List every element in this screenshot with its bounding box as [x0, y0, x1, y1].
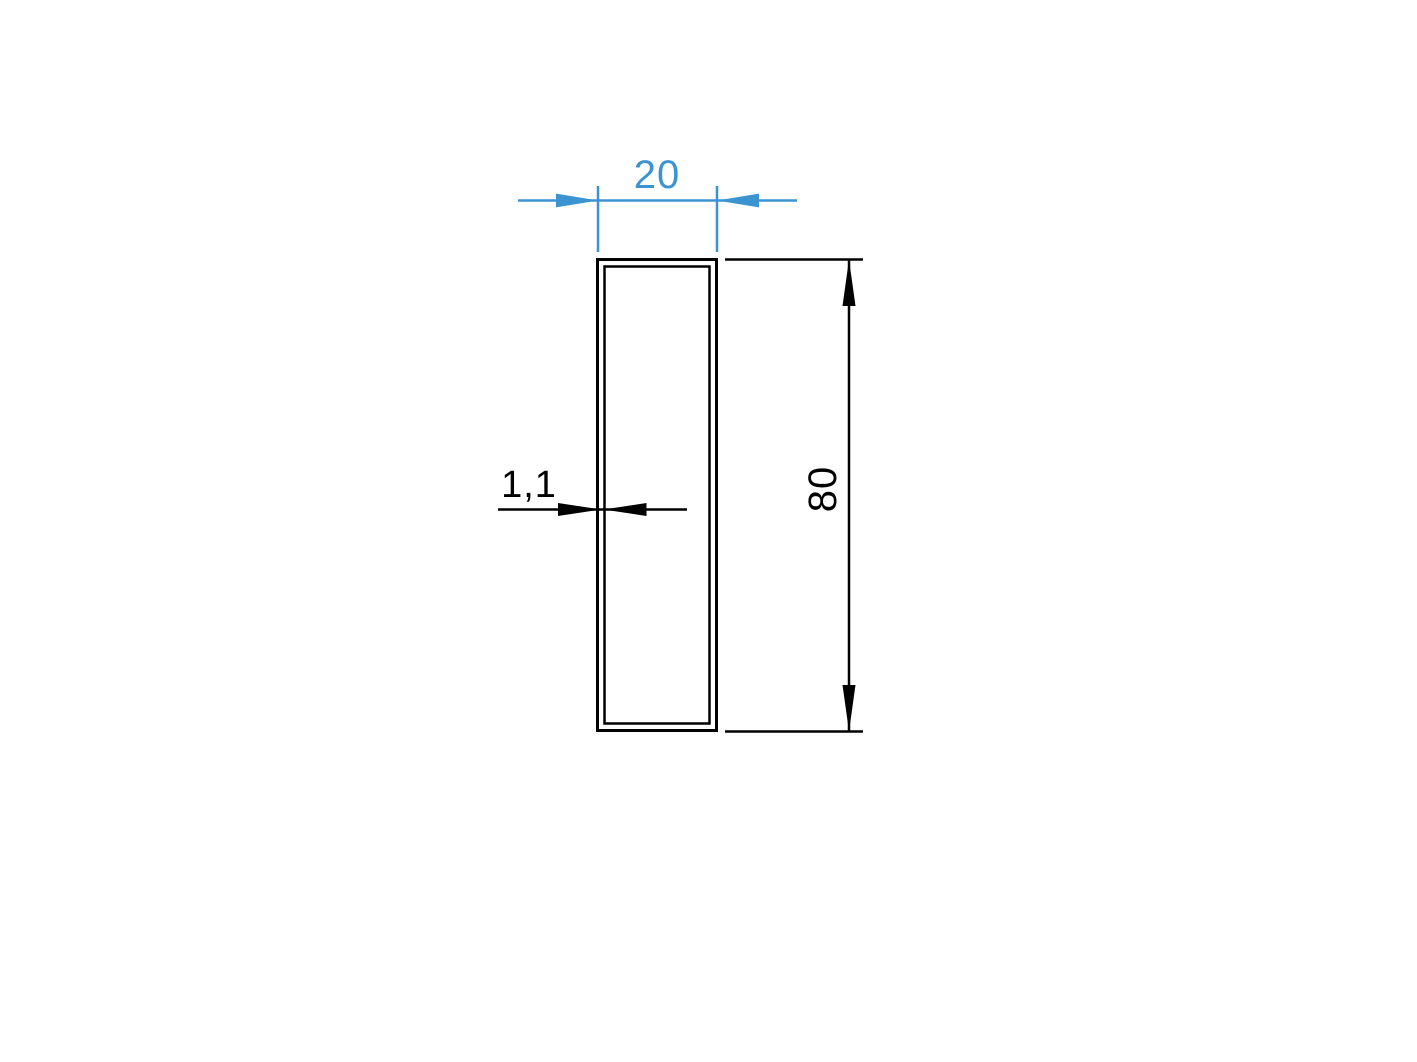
- wall-thickness-label: 1,1: [501, 464, 557, 506]
- wall-arrow-right-icon: [558, 503, 601, 516]
- height-dimension: 80: [725, 260, 863, 732]
- wall-arrow-left-icon: [604, 503, 647, 516]
- width-arrow-left-icon: [556, 194, 598, 208]
- profile-inner-contour: [605, 267, 710, 724]
- width-dimension: 20: [518, 153, 797, 252]
- drawing-page: 20 80 1,1: [0, 0, 1417, 1062]
- height-arrow-up-icon: [843, 260, 856, 307]
- profile-technical-drawing: 20 80 1,1: [0, 0, 1417, 1062]
- tube-profile-cross-section: [598, 260, 717, 731]
- profile-outer-contour: [598, 260, 717, 731]
- width-arrow-right-icon: [717, 194, 759, 208]
- width-dimension-label: 20: [634, 153, 681, 197]
- height-dimension-label: 80: [801, 466, 845, 513]
- wall-thickness-dimension: 1,1: [498, 464, 687, 516]
- height-arrow-down-icon: [843, 685, 856, 732]
